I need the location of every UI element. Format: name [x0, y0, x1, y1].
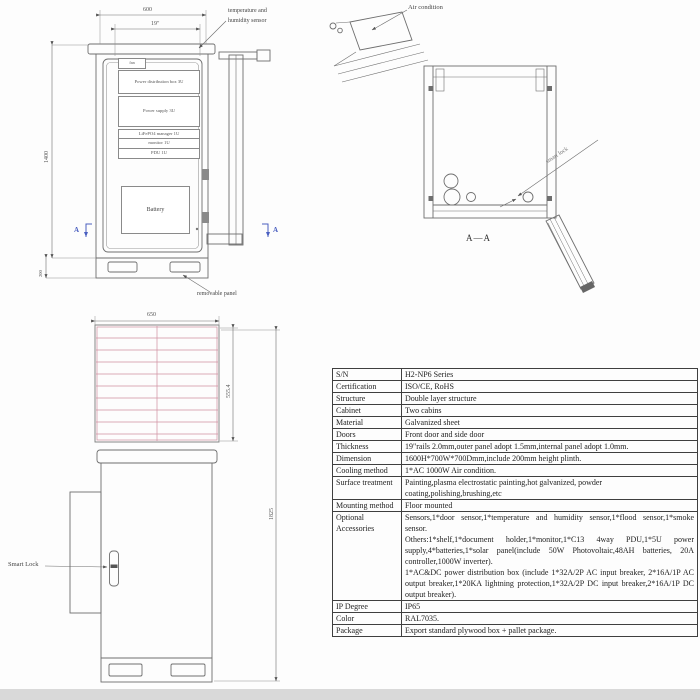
spec-label: Thickness: [333, 441, 402, 453]
spec-row: Optional AccessoriesSensors,1*door senso…: [333, 512, 698, 601]
spec-value: 1600H*700W*700Dmm,include 200mm height p…: [402, 453, 698, 465]
spec-row: CabinetTwo cabins: [333, 405, 698, 417]
spec-label: Dimension: [333, 453, 402, 465]
spec-value-paragraph: Others:1*shelf,1*document holder,1*monit…: [405, 534, 694, 567]
spec-row: Cooling method1*AC 1000W Air condition.: [333, 465, 698, 477]
spec-row: Surface treatmentPainting,plasma electro…: [333, 477, 698, 500]
sensor-label-line2: humidity sensor: [228, 18, 267, 24]
spec-value: 19"rails 2.0mm,outer panel adopt 1.5mm,i…: [402, 441, 698, 453]
spec-label: Package: [333, 625, 402, 637]
rack-width-dim: 19": [151, 21, 159, 27]
spec-row: S/NH2-NP6 Series: [333, 369, 698, 381]
total-height-dim: 1825: [269, 508, 275, 520]
spec-value: IP65: [402, 601, 698, 613]
spec-value: Front door and side door: [402, 429, 698, 441]
solar-panel-grid: [96, 326, 218, 441]
component-power-supply: Power supply 3U: [118, 96, 200, 127]
spec-label: S/N: [333, 369, 402, 381]
spec-value: Galvanized sheet: [402, 417, 698, 429]
air-condition-label: Air condition: [408, 4, 443, 11]
spec-row: CertificationISO/CE, RoHS: [333, 381, 698, 393]
spec-row: ColorRAL7035.: [333, 613, 698, 625]
spec-row: PackageExport standard plywood box + pal…: [333, 625, 698, 637]
technical-drawing-sheet: 600 19" 1400 200 temperature and humidit…: [0, 0, 700, 700]
spec-row: StructureDouble layer structure: [333, 393, 698, 405]
removable-panel-label: removable panel: [197, 291, 237, 297]
spec-value: ISO/CE, RoHS: [402, 381, 698, 393]
spec-value: H2-NP6 Series: [402, 369, 698, 381]
spec-row: IP DegreeIP65: [333, 601, 698, 613]
spec-value: 1*AC 1000W Air condition.: [402, 465, 698, 477]
plinth-height-dim: 200: [38, 270, 43, 277]
spec-value-paragraph: 1*AC&DC power distribution box (include …: [405, 567, 694, 600]
panel-height-dim: 555.4: [226, 385, 232, 399]
front-height-dim: 1400: [44, 151, 50, 163]
spec-label: Cooling method: [333, 465, 402, 477]
spec-row: DoorsFront door and side door: [333, 429, 698, 441]
spec-value-paragraph: Sensors,1*door sensor,1*temperature and …: [405, 512, 694, 534]
spec-value: Two cabins: [402, 405, 698, 417]
spec-row: MaterialGalvanized sheet: [333, 417, 698, 429]
front-width-dim: 600: [143, 7, 152, 13]
spec-label: Color: [333, 613, 402, 625]
spec-label: IP Degree: [333, 601, 402, 613]
spec-table: S/NH2-NP6 SeriesCertificationISO/CE, RoH…: [332, 368, 698, 637]
spec-label: Certification: [333, 381, 402, 393]
fan-box: fan: [118, 58, 146, 69]
scan-edge-band: [0, 689, 700, 700]
spec-table-body: S/NH2-NP6 SeriesCertificationISO/CE, RoH…: [333, 369, 698, 637]
component-power-distribution-box: Power distribution box 3U: [118, 70, 200, 94]
side-width-dim: 650: [147, 312, 156, 318]
spec-label: Structure: [333, 393, 402, 405]
spec-value: RAL7035.: [402, 613, 698, 625]
spec-row: Thickness19"rails 2.0mm,outer panel adop…: [333, 441, 698, 453]
spec-value: Sensors,1*door sensor,1*temperature and …: [402, 512, 698, 601]
spec-value: Export standard plywood box + pallet pac…: [402, 625, 698, 637]
section-marker-left: A: [74, 226, 79, 234]
section-marker-right: A: [273, 226, 278, 234]
battery-box: Battery: [121, 186, 190, 234]
spec-label: Doors: [333, 429, 402, 441]
section-caption: A—A: [466, 233, 491, 243]
smart-lock-label: Smart Lock: [8, 561, 39, 568]
spec-label: Material: [333, 417, 402, 429]
component-pdu: PDU 1U: [118, 148, 200, 160]
spec-row: Dimension1600H*700W*700Dmm,include 200mm…: [333, 453, 698, 465]
spec-label: Cabinet: [333, 405, 402, 417]
spec-value: Floor mounted: [402, 500, 698, 512]
sensor-label-line1: temperature and: [228, 8, 267, 14]
spec-label: Mounting method: [333, 500, 402, 512]
spec-label: Surface treatment: [333, 477, 402, 500]
spec-row: Mounting methodFloor mounted: [333, 500, 698, 512]
spec-label: Optional Accessories: [333, 512, 402, 601]
side-view: [45, 316, 280, 682]
spec-value: Painting,plasma electrostatic painting,h…: [402, 477, 698, 500]
spec-value: Double layer structure: [402, 393, 698, 405]
